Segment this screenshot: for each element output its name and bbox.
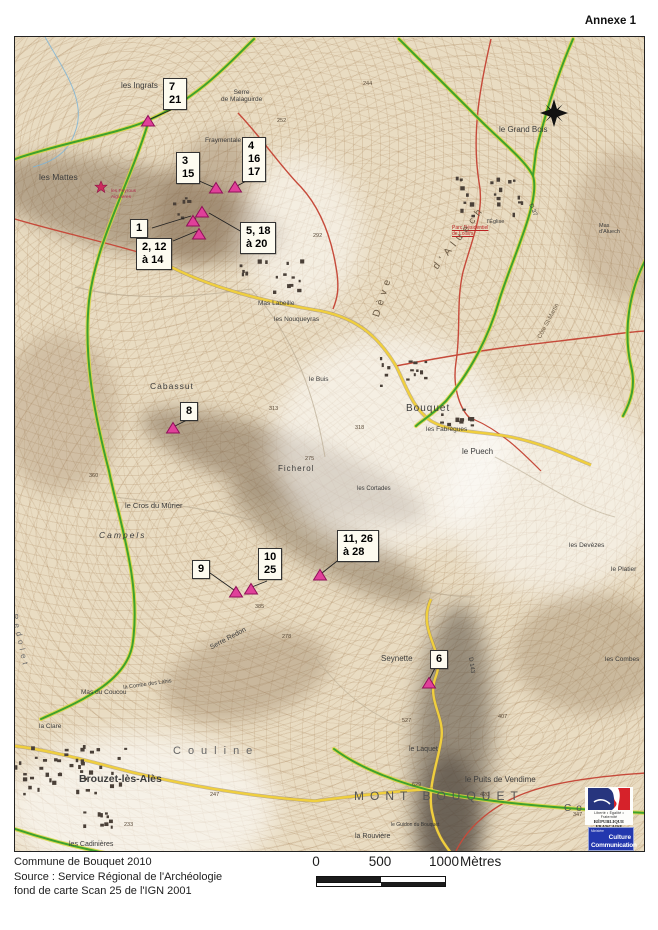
site-labels-layer: 7 213 154 16 1712, 12 à 145, 18 à 208910… xyxy=(15,37,645,852)
marianne-flag-icon xyxy=(588,788,630,810)
caption-line-3: fond de carte Scan 25 de l'IGN 2001 xyxy=(14,884,222,899)
topographic-map: les IngratsSerre de MalaguirdeFraymental… xyxy=(14,36,645,852)
scale-tick-1000: 1000 xyxy=(429,854,459,869)
site-number-label: 8 xyxy=(180,402,198,421)
site-number-label: 7 21 xyxy=(163,78,187,110)
scale-tick-500: 500 xyxy=(369,854,392,869)
annexe-page: Annexe 1 xyxy=(0,0,658,930)
site-number-label: 1 xyxy=(130,219,148,238)
culture-communication-logo: Ministère Culture Communication xyxy=(588,827,634,851)
scale-unit: Mètres xyxy=(460,854,501,869)
site-number-label: 9 xyxy=(192,560,210,579)
scale-bar-graphic xyxy=(316,876,446,887)
annexe-title: Annexe 1 xyxy=(585,15,636,27)
site-number-label: 10 25 xyxy=(258,548,282,580)
site-number-label: 5, 18 à 20 xyxy=(240,222,276,254)
site-number-label: 4 16 17 xyxy=(242,137,266,182)
site-number-label: 6 xyxy=(430,650,448,669)
scale-tick-0: 0 xyxy=(312,854,320,869)
site-number-label: 3 15 xyxy=(176,152,200,184)
scale-bar: 0 500 1000 Mètres xyxy=(310,854,530,900)
republique-francaise-logo: Liberté • Égalité • Fraternité RÉPUBLIQU… xyxy=(585,787,633,825)
caption-line-2: Source : Service Régional de l'Archéolog… xyxy=(14,870,222,885)
rf-motto: Liberté • Égalité • Fraternité xyxy=(587,811,631,819)
site-number-label: 11, 26 à 28 xyxy=(337,530,379,562)
map-caption: Commune de Bouquet 2010 Source : Service… xyxy=(14,855,222,899)
site-number-label: 2, 12 à 14 xyxy=(136,238,172,270)
caption-line-1: Commune de Bouquet 2010 xyxy=(14,855,222,870)
culture-line2: Communication xyxy=(591,842,631,849)
culture-ministere: Ministère xyxy=(591,829,631,833)
